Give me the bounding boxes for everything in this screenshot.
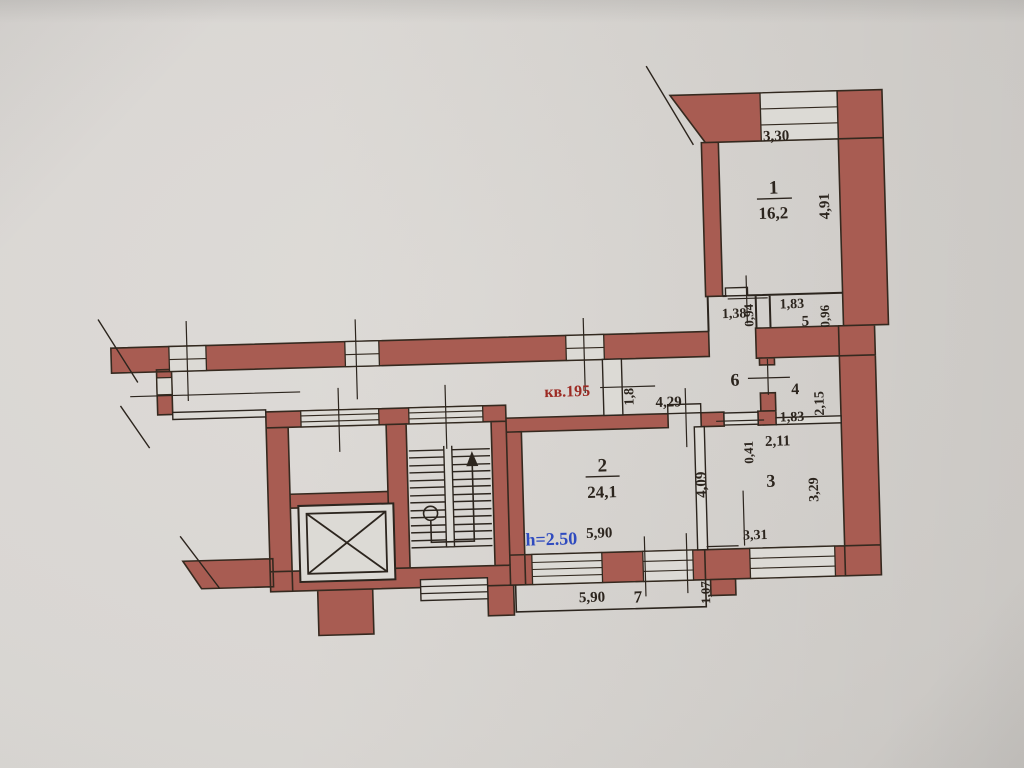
room3-depth-dim: 3,29 xyxy=(807,477,823,502)
lobby-depth-dim: 0,94 xyxy=(741,303,757,327)
door-leaf xyxy=(725,287,747,296)
room3-door-offset-dim: 0,41 xyxy=(741,441,757,464)
stair-arrow-icon xyxy=(466,451,478,466)
room2-depth-dim: 4,09 xyxy=(694,471,711,498)
room2-width-dim: 5,90 xyxy=(586,525,613,542)
plan-group: 3,30 1 16,2 4,91 1,38 0,94 1,83 5 0,96 к… xyxy=(91,60,896,642)
room5-number-label: 5 xyxy=(801,314,809,330)
window-icon xyxy=(643,550,694,581)
room1-number-label: 1 xyxy=(769,177,779,198)
room4-width-dim: 1,83 xyxy=(780,410,805,426)
room1-depth-dim: 4,91 xyxy=(817,193,834,220)
floor-plan-photo: 3,30 1 16,2 4,91 1,38 0,94 1,83 5 0,96 к… xyxy=(0,0,1024,768)
room4-depth-dim: 2,15 xyxy=(812,391,828,416)
parapet-wall xyxy=(173,410,266,420)
hall-length-dim: 4,29 xyxy=(655,394,682,411)
room7-width-dim: 5,90 xyxy=(579,589,606,606)
elevator-icon xyxy=(298,503,395,582)
stair-start-circle-icon xyxy=(423,506,437,520)
room4-number-label: 4 xyxy=(791,381,799,398)
room3-door-width-dim: 2,11 xyxy=(765,433,791,450)
room7-number-label: 7 xyxy=(633,587,643,606)
room3-number-label: 3 xyxy=(766,471,776,491)
room3-width-dim: 3,31 xyxy=(743,528,768,544)
room2-number-label: 2 xyxy=(597,455,607,476)
window-icon xyxy=(157,377,172,394)
room5-width-dim: 1,83 xyxy=(779,297,804,313)
entry-steps-icon xyxy=(420,578,488,601)
room1-width-dim: 3,30 xyxy=(763,128,790,145)
room2-area-label: 24,1 xyxy=(587,482,617,502)
apartment-number-label: кв.195 xyxy=(544,383,590,401)
entry-width-dim: 1,8 xyxy=(622,388,637,406)
room1-area-label: 16,2 xyxy=(758,203,788,223)
stairs-icon xyxy=(409,445,493,548)
room5-depth-dim: 0,96 xyxy=(817,304,833,328)
window-icon xyxy=(301,409,379,427)
window-icon xyxy=(750,546,836,578)
floor-plan-svg: 3,30 1 16,2 4,91 1,38 0,94 1,83 5 0,96 к… xyxy=(0,0,1024,768)
door-opening xyxy=(724,412,758,425)
room6-number-label: 6 xyxy=(730,370,740,390)
ceiling-height-label: h=2.50 xyxy=(525,528,577,549)
room7-depth-dim: 1,07 xyxy=(698,581,714,605)
